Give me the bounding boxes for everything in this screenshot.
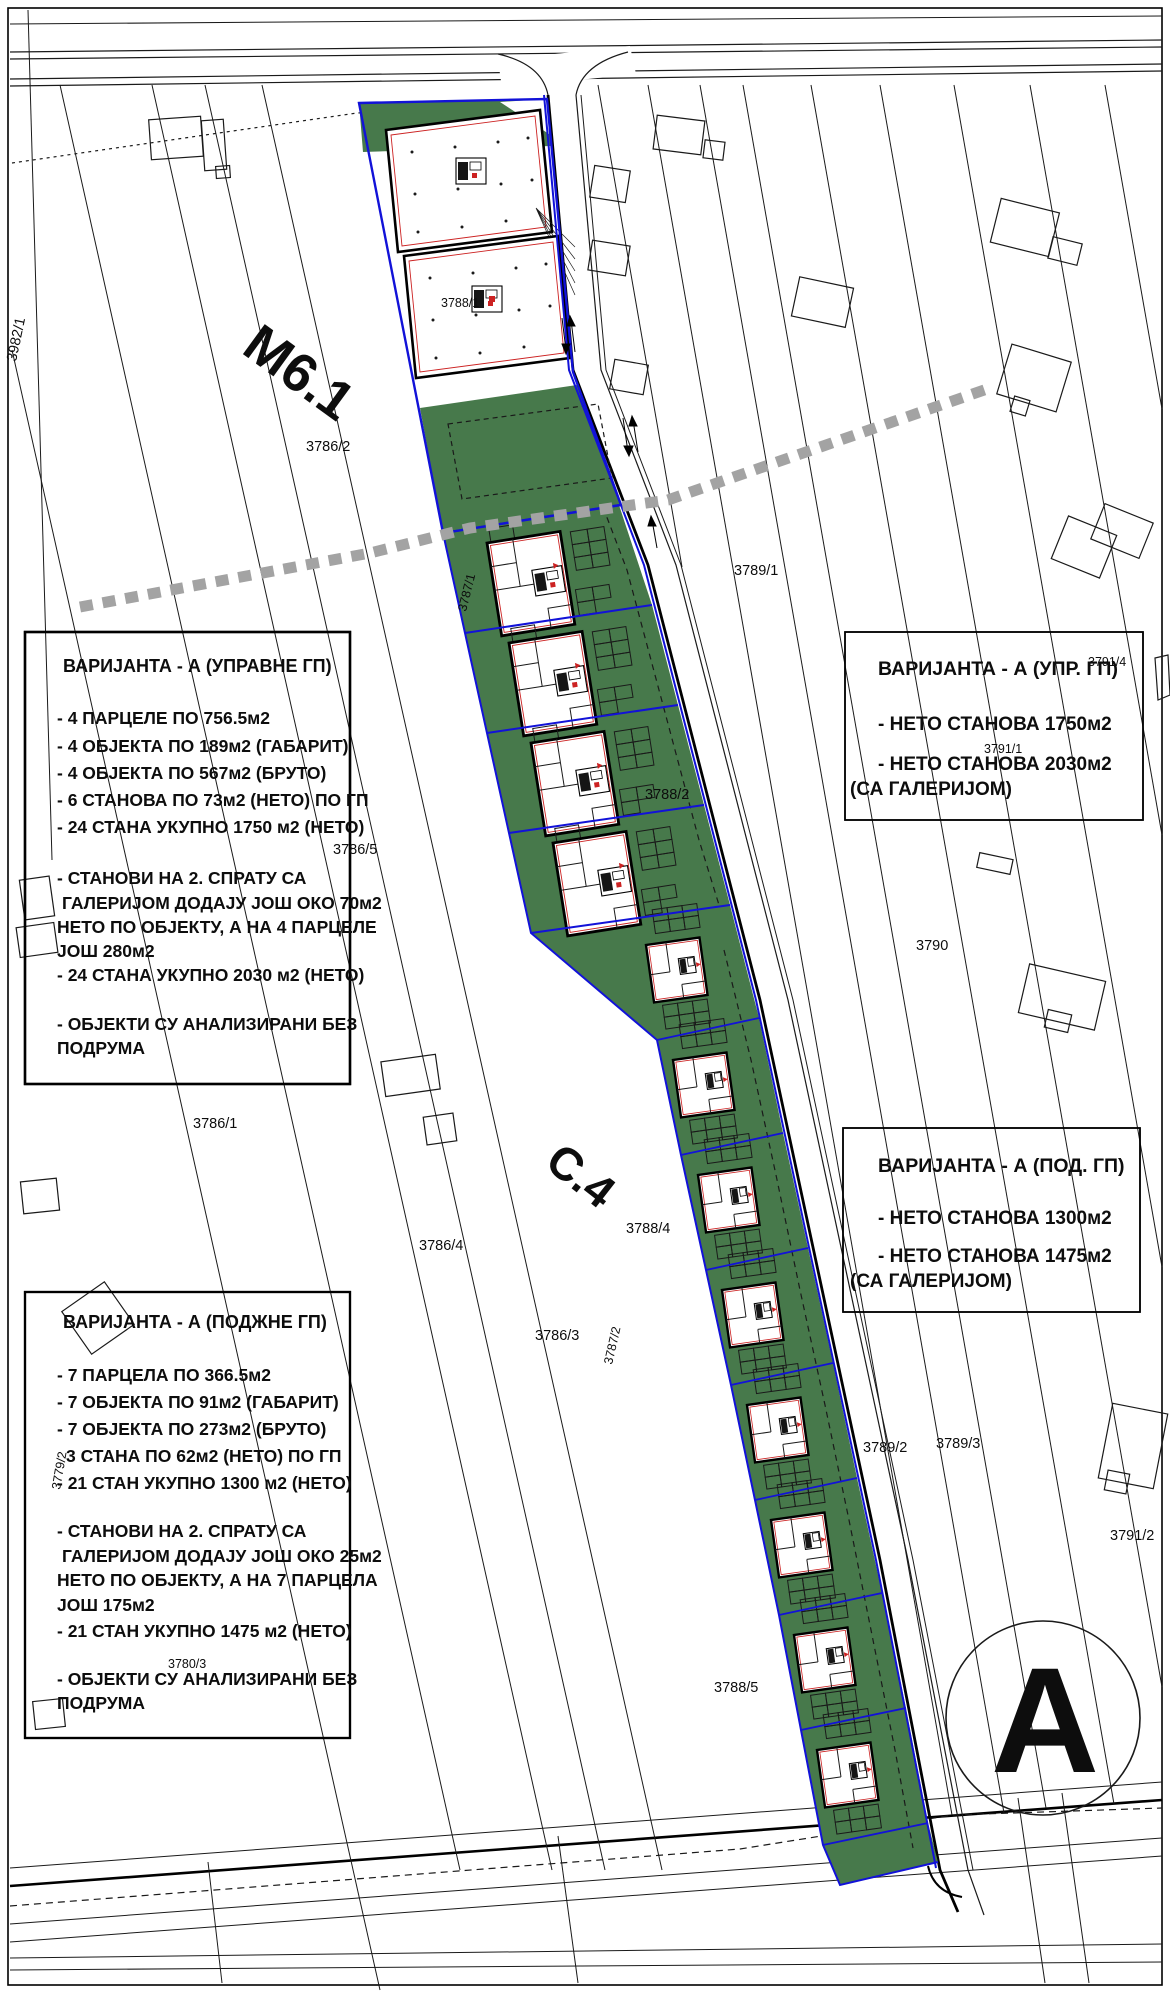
box-line: - ОБЈЕКТИ СУ АНАЛИЗИРАНИ БЕЗ	[57, 1014, 357, 1034]
zone-label-m61: М6.1	[233, 313, 365, 432]
box-line: - ОБЈЕКТИ СУ АНАЛИЗИРАНИ БЕЗ	[57, 1669, 357, 1689]
parcel-label: 3786/3	[535, 1328, 579, 1344]
parcel-label: 3789/2	[863, 1440, 907, 1456]
site-plan-drawing: 3982/1 3786/2 3788/1 3789/1 3791/1 3791/…	[0, 0, 1170, 1993]
box-line: 3 СТАНА ПО 62м2 (НЕТО) ПО ГП	[66, 1446, 341, 1466]
box-title: ВАРИЈАНТА - А (ПОД. ГП)	[878, 1155, 1125, 1177]
box-line: - СТАНОВИ НА 2. СПРАТУ СА	[57, 868, 307, 888]
box-line: ЈОШ 280м2	[57, 941, 155, 961]
box-line: - 4 ОБЈЕКТА ПО 189м2 (ГАБАРИТ)	[57, 736, 348, 756]
top-road	[10, 16, 1162, 95]
sheet-letter: А	[991, 1636, 1099, 1804]
building-block-2	[404, 236, 570, 378]
box-line: - 7 ПАРЦЕЛА ПО 366.5м2	[57, 1365, 271, 1385]
box-title: ВАРИЈАНТА - А (ПОДЖНЕ ГП)	[63, 1312, 327, 1332]
parcel-label: 3788/4	[626, 1221, 670, 1237]
parcel-label: 3789/1	[734, 563, 778, 579]
box-line: НЕТО ПО ОБЈЕКТУ, А НА 4 ПАРЦЕЛЕ	[57, 917, 377, 937]
site-plan-page: 3982/1 3786/2 3788/1 3789/1 3791/1 3791/…	[0, 0, 1170, 1993]
box-line: - НЕТО СТАНОВА 1300м2	[878, 1208, 1112, 1229]
bottom-road	[10, 1782, 1162, 1983]
parcel-label: 3786/2	[306, 439, 350, 455]
box-line: - НЕТО СТАНОВА 1475м2	[878, 1246, 1112, 1267]
parcel-label: 3786/4	[419, 1238, 463, 1254]
box-line: - СТАНОВИ НА 2. СПРАТУ СА	[57, 1521, 307, 1541]
parcel-label: 3787/2	[601, 1325, 623, 1365]
box-line: (СА ГАЛЕРИЈОМ)	[850, 1271, 1012, 1292]
box-line: ПОДРУМА	[57, 1693, 145, 1713]
box-line: - 7 ОБЈЕКТА ПО 273м2 (БРУТО)	[57, 1419, 326, 1439]
box-line: - 21 СТАН УКУПНО 1475 м2 (НЕТО)	[57, 1621, 352, 1641]
box-line: - 4 ОБЈЕКТА ПО 567м2 (БРУТО)	[57, 763, 326, 783]
red-tick	[489, 296, 495, 302]
parcel-label: 3790	[916, 938, 948, 954]
box-line: - 21 СТАН УКУПНО 1300 м2 (НЕТО)	[57, 1473, 352, 1493]
parcel-label: 3788/2	[645, 787, 689, 803]
box-line: - 4 ПАРЦЕЛЕ ПО 756.5м2	[57, 708, 270, 728]
box-line: - 6 СТАНОВА ПО 73м2 (НЕТО) ПО ГП	[57, 790, 369, 810]
parcel-label: 3789/3	[936, 1436, 980, 1452]
parcel-label: 3788/5	[714, 1680, 758, 1696]
box-line: - 24 СТАНА УКУПНО 1750 м2 (НЕТО)	[57, 817, 364, 837]
parcel-label: 3791/2	[1110, 1528, 1154, 1544]
parcel-label: 3788/1	[441, 296, 479, 310]
box-line: ГАЛЕРИЈОМ ДОДАЈУ ЈОШ ОКО 70м2	[62, 893, 382, 913]
box-line: ГАЛЕРИЈОМ ДОДАЈУ ЈОШ ОКО 25м2	[62, 1546, 382, 1566]
parcel-label: 3786/1	[193, 1116, 237, 1132]
box-line: - 24 СТАНА УКУПНО 2030 м2 (НЕТО)	[57, 965, 364, 985]
box-line: - НЕТО СТАНОВА 1750м2	[878, 714, 1112, 735]
parcel-label: 3786/5	[333, 842, 377, 858]
box-line: (СА ГАЛЕРИЈОМ)	[850, 779, 1012, 800]
box-line: ЈОШ 175м2	[57, 1595, 155, 1615]
zone-label-c4: С.4	[537, 1133, 626, 1218]
box-line: - 7 ОБЈЕКТА ПО 91м2 (ГАБАРИТ)	[57, 1392, 339, 1412]
box-title: ВАРИЈАНТА - А (УПРАВНЕ ГП)	[63, 656, 332, 676]
box-line: ПОДРУМА	[57, 1038, 145, 1058]
box-line: НЕТО ПО ОБЈЕКТУ, А НА 7 ПАРЦЕЛА	[57, 1570, 378, 1590]
box-title: ВАРИЈАНТА - А (УПР. ГП)	[878, 658, 1118, 680]
box-line: - НЕТО СТАНОВА 2030м2	[878, 754, 1112, 775]
